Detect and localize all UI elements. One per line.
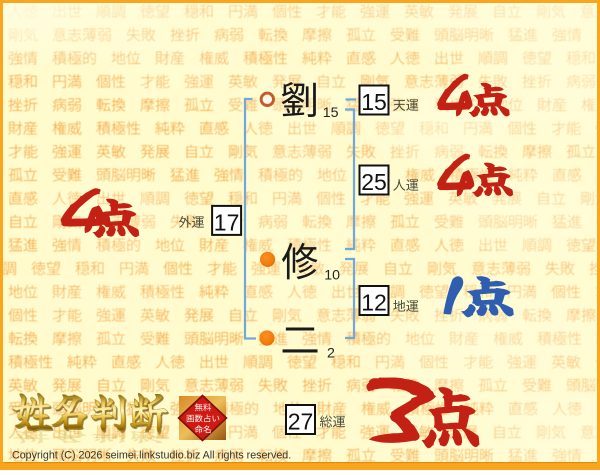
svg-text:Copyright (C) 2026 seimei.link: Copyright (C) 2026 seimei.linkstudio.biz… <box>12 450 291 462</box>
svg-text:15: 15 <box>361 89 387 115</box>
svg-text:12: 12 <box>361 290 387 316</box>
svg-text:25: 25 <box>361 169 387 195</box>
svg-text:17: 17 <box>214 210 240 236</box>
svg-text:27: 27 <box>288 409 314 435</box>
svg-text:15: 15 <box>323 105 339 121</box>
svg-text:2: 2 <box>327 346 335 362</box>
svg-text:10: 10 <box>324 267 340 283</box>
